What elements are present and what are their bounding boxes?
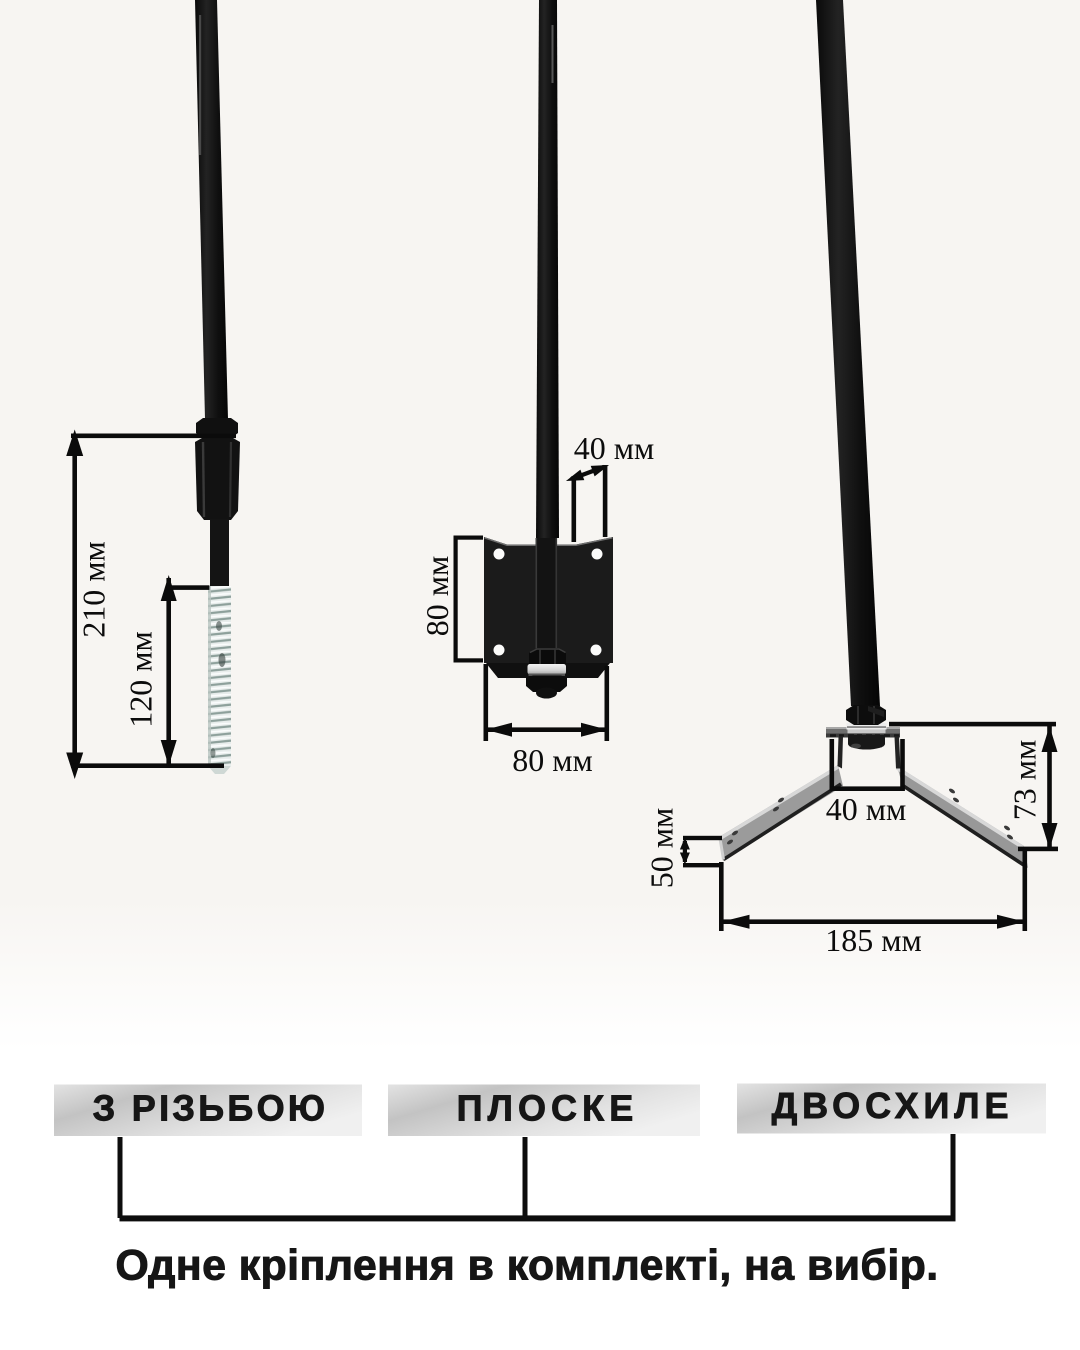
svg-text:73 мм: 73 мм: [1007, 740, 1043, 821]
svg-text:40 мм: 40 мм: [826, 791, 907, 827]
svg-text:185 мм: 185 мм: [825, 922, 922, 958]
svg-text:120 мм: 120 мм: [123, 631, 159, 728]
svg-text:50 мм: 50 мм: [644, 808, 680, 889]
svg-text:80 мм: 80 мм: [512, 742, 593, 778]
svg-text:ПЛОСКЕ: ПЛОСКЕ: [457, 1088, 639, 1129]
svg-text:Одне кріплення в комплекті, на: Одне кріплення в комплекті, на вибір.: [115, 1242, 938, 1290]
svg-text:80 мм: 80 мм: [419, 556, 455, 637]
svg-text:40 мм: 40 мм: [574, 430, 655, 466]
svg-text:210 мм: 210 мм: [76, 541, 112, 638]
svg-text:ДВОСХИЛЕ: ДВОСХИЛЕ: [772, 1085, 1014, 1126]
svg-text:З РІЗЬБОЮ: З РІЗЬБОЮ: [93, 1088, 329, 1129]
